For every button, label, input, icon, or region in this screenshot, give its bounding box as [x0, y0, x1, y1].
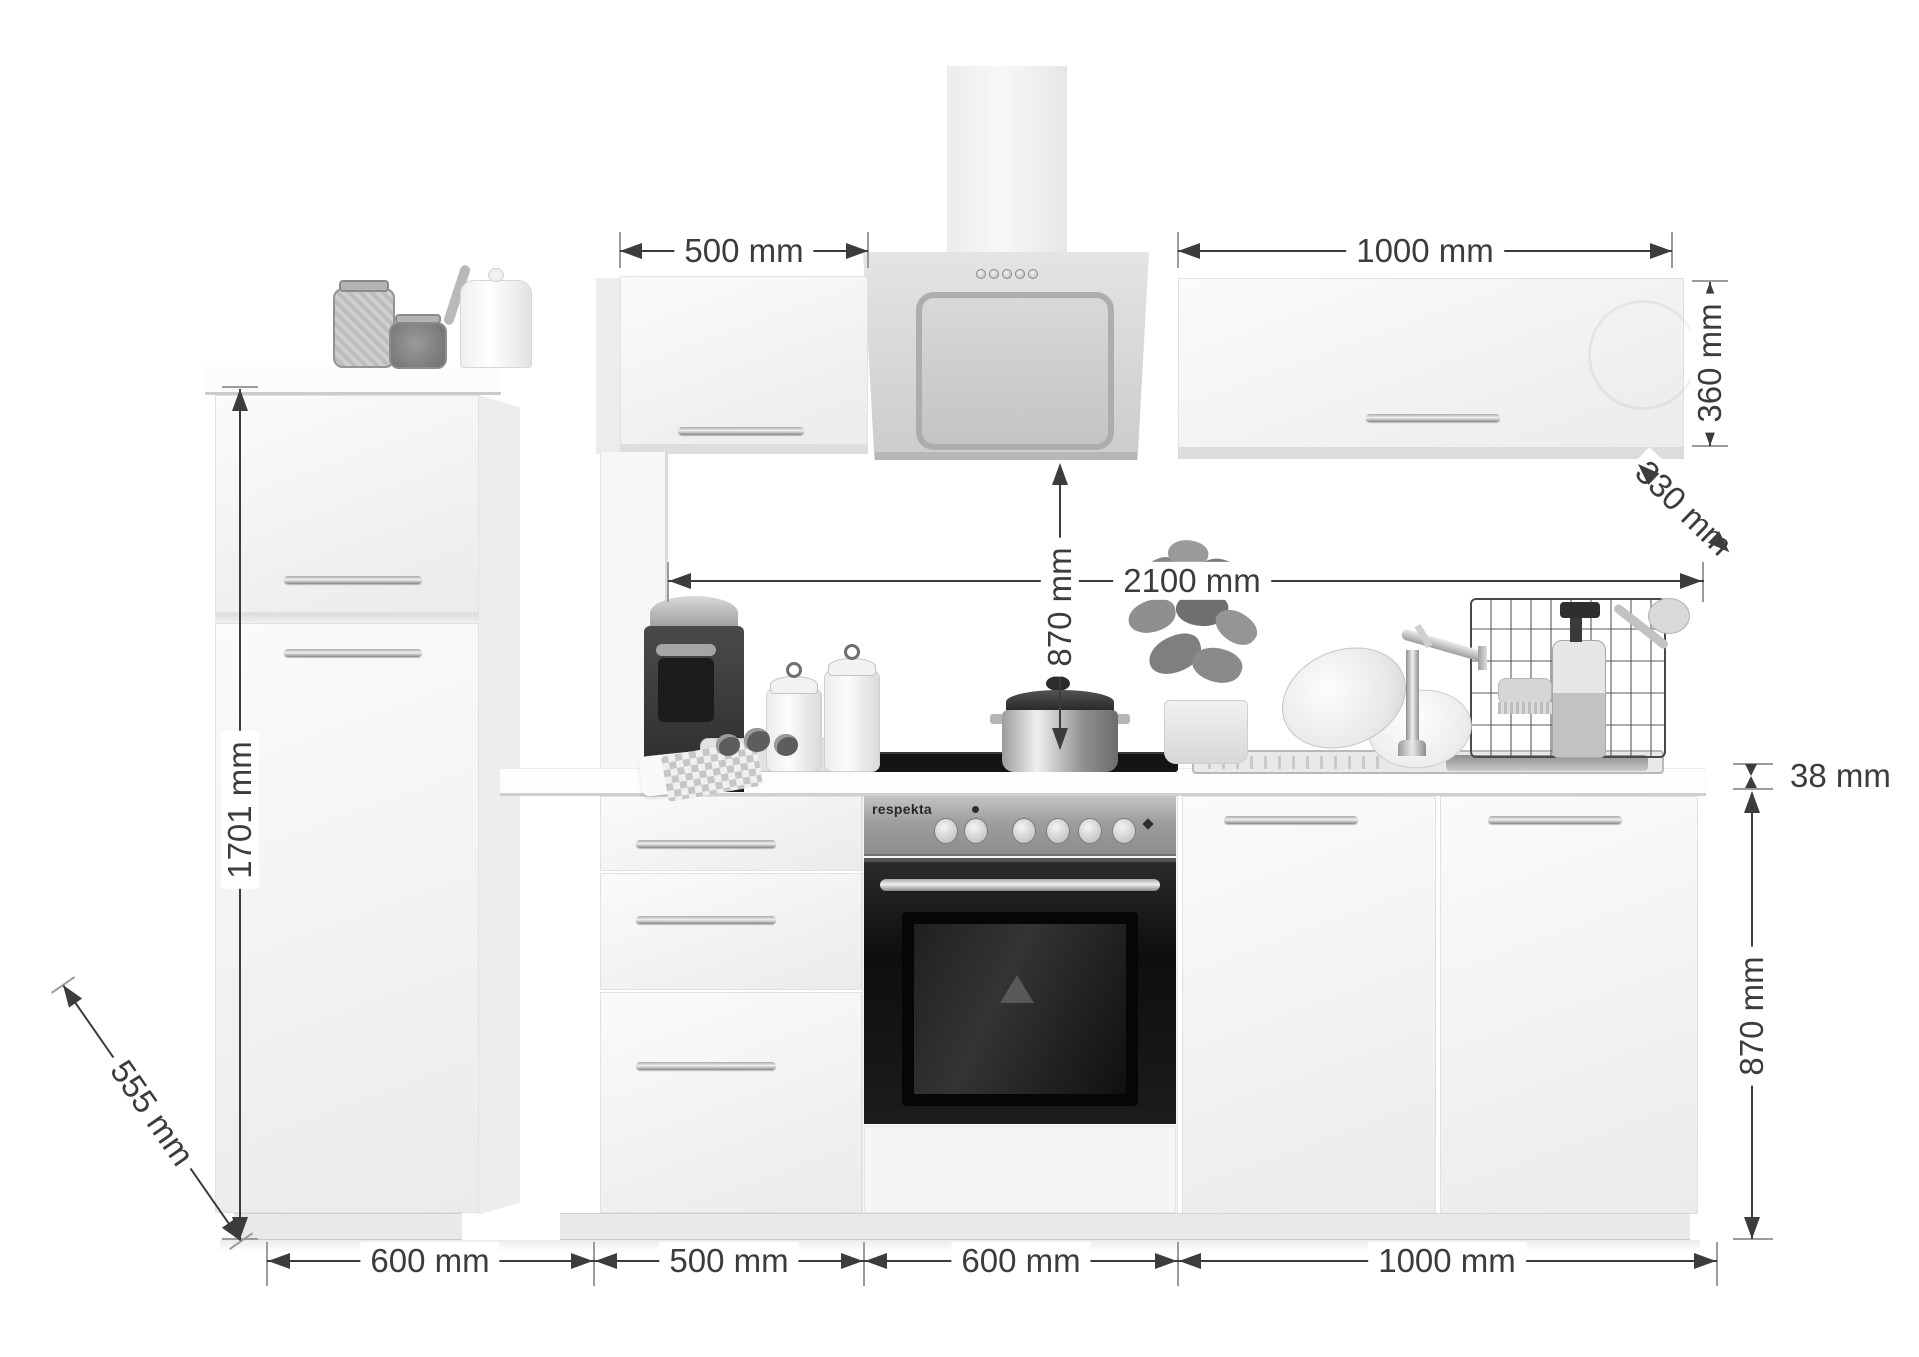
- dim-label-bottom-600a: 600 mm: [360, 1242, 499, 1280]
- hood-chimney: [947, 66, 1067, 256]
- oven-indicator-light: [972, 806, 979, 813]
- dim-label-worktop-thickness: 38 mm: [1780, 757, 1901, 795]
- arrow-down-icon: [232, 1217, 248, 1239]
- dim-label-wall-cab-left: 500 mm: [674, 232, 813, 270]
- tall-unit-lower-handle: [284, 649, 422, 657]
- arrow-down-icon: [1745, 764, 1757, 776]
- tall-unit-upper-handle: [284, 576, 422, 584]
- drawer-2-handle: [636, 916, 776, 924]
- oven-knob: [964, 818, 988, 844]
- arrow-up-icon: [1744, 791, 1760, 813]
- dim-line-wall-cab-depth: 330 mm: [1637, 463, 1730, 553]
- tall-unit-door-seam: [215, 613, 479, 623]
- canister-large-lid: [828, 658, 876, 676]
- canister-large-ring: [844, 644, 860, 660]
- arrow-right-icon: [1650, 243, 1672, 259]
- arrow-left-icon: [1178, 243, 1200, 259]
- arrow-right-icon: [571, 1253, 593, 1269]
- pretzel: [774, 734, 798, 756]
- drawer-2: [600, 873, 862, 990]
- arrow-left-icon: [620, 243, 642, 259]
- pot-handle: [1116, 714, 1130, 724]
- wall-cabinet-1000-bottom: [1178, 447, 1684, 459]
- drawer-3: [600, 992, 862, 1213]
- tall-unit-lower-door: [215, 623, 479, 1213]
- canister-small: [766, 688, 822, 772]
- pretzel: [716, 734, 740, 756]
- dim-tick: [1733, 788, 1773, 790]
- hood-button-icon: [989, 269, 999, 279]
- tall-unit-side: [478, 395, 520, 1215]
- oven-window: [902, 912, 1138, 1106]
- plant-leaf: [1126, 596, 1179, 636]
- faucet-base: [1398, 740, 1426, 756]
- arrow-right-icon: [1694, 1253, 1716, 1269]
- canister-small-ring: [786, 662, 802, 678]
- jug-knob: [488, 268, 504, 282]
- base-door-1-handle: [1224, 816, 1358, 824]
- dim-label-bottom-500: 500 mm: [659, 1242, 798, 1280]
- coffee-machine-front: [658, 658, 714, 722]
- base-door-1: [1182, 796, 1436, 1214]
- oven-knob: [1078, 818, 1102, 844]
- plant-pot: [1164, 700, 1248, 764]
- arrow-left-icon: [1179, 1253, 1201, 1269]
- wall-cabinet-left-side: [596, 278, 622, 454]
- dish-brush-head: [1648, 598, 1690, 634]
- hood-button-icon: [1028, 269, 1038, 279]
- arrow-down-icon: [1052, 728, 1068, 750]
- dim-label-worktop-run: 2100 mm: [1113, 562, 1271, 600]
- dim-tick: [1716, 1242, 1718, 1286]
- dim-tick: [1702, 562, 1704, 602]
- dim-tick: [222, 386, 258, 388]
- dim-label-bottom-1000: 1000 mm: [1368, 1242, 1526, 1280]
- drawer-1: [600, 796, 862, 871]
- base-door-2-handle: [1488, 816, 1622, 824]
- soap-pump: [1570, 618, 1582, 642]
- arrow-left-icon: [865, 1253, 887, 1269]
- scrub-brush-bristles: [1498, 702, 1552, 714]
- dim-label-hood-clearance: 870 mm: [1041, 537, 1079, 676]
- base-plinth: [560, 1213, 1690, 1240]
- hood-button-icon: [1002, 269, 1012, 279]
- pretzel: [744, 728, 770, 752]
- drawer-1-handle: [636, 840, 776, 848]
- arrow-left-icon: [669, 573, 691, 589]
- scrub-brush: [1498, 678, 1552, 704]
- oven-knob: [1012, 818, 1036, 844]
- cabinet-reflection: [1588, 300, 1698, 410]
- arrow-up-icon: [232, 389, 248, 411]
- oven-knob: [934, 818, 958, 844]
- dim-label-wall-cab-right: 1000 mm: [1346, 232, 1504, 270]
- hood-button-icon: [1015, 269, 1025, 279]
- drawer-3-handle: [636, 1062, 776, 1070]
- arrow-right-icon: [846, 243, 868, 259]
- oven-door-handle: [880, 879, 1160, 891]
- storage-jar-small: [389, 322, 447, 369]
- soap-bottle: [1552, 640, 1606, 758]
- storage-jar-large-lid: [339, 280, 389, 292]
- storage-jar-large: [333, 288, 395, 368]
- hood-glass-panel: [916, 292, 1114, 450]
- pot-knob: [1046, 676, 1070, 691]
- soap-pump-head: [1560, 602, 1600, 618]
- jug: [460, 280, 532, 368]
- dim-label-wall-cab-height: 360 mm: [1691, 293, 1729, 432]
- arrow-up-icon: [1052, 463, 1068, 485]
- arrow-right-icon: [841, 1253, 863, 1269]
- wall-cabinet-500-handle: [678, 427, 804, 435]
- arrow-right-icon: [1680, 573, 1702, 589]
- faucet-riser: [1406, 650, 1419, 746]
- arrow-left-icon: [595, 1253, 617, 1269]
- hood-button-icon: [976, 269, 986, 279]
- coffee-machine-lever: [656, 644, 716, 656]
- kitchen-dimension-diagram: respekta: [0, 0, 1919, 1357]
- arrow-left-icon: [268, 1253, 290, 1269]
- arrow-down-icon: [1744, 1217, 1760, 1239]
- oven-knob: [1046, 818, 1070, 844]
- hood-bottom-edge: [875, 452, 1137, 460]
- arrow-right-icon: [1155, 1253, 1177, 1269]
- dim-label-bottom-600b: 600 mm: [951, 1242, 1090, 1280]
- coffee-machine-dome: [650, 596, 738, 630]
- canister-small-lid: [770, 676, 818, 694]
- oven-window-warning-icon: [1000, 975, 1034, 1003]
- tall-unit-worktop: [205, 367, 501, 395]
- oven-brand: respekta: [872, 801, 932, 817]
- dim-label-tall-unit-height: 1701 mm: [221, 731, 259, 889]
- base-door-2: [1440, 796, 1698, 1214]
- arrow-up-icon: [1745, 776, 1757, 788]
- dim-label-worktop-depth: 555 mm: [97, 1046, 207, 1180]
- oven-knob: [1112, 818, 1136, 844]
- tall-unit-plinth: [234, 1213, 462, 1240]
- dim-label-base-height: 870 mm: [1733, 946, 1771, 1085]
- canister-large: [824, 670, 880, 772]
- wall-cabinet-1000-handle: [1366, 414, 1500, 422]
- faucet-outlet: [1478, 646, 1487, 670]
- oven-lower-filler: [864, 1126, 1176, 1213]
- storage-jar-small-lid: [395, 314, 441, 324]
